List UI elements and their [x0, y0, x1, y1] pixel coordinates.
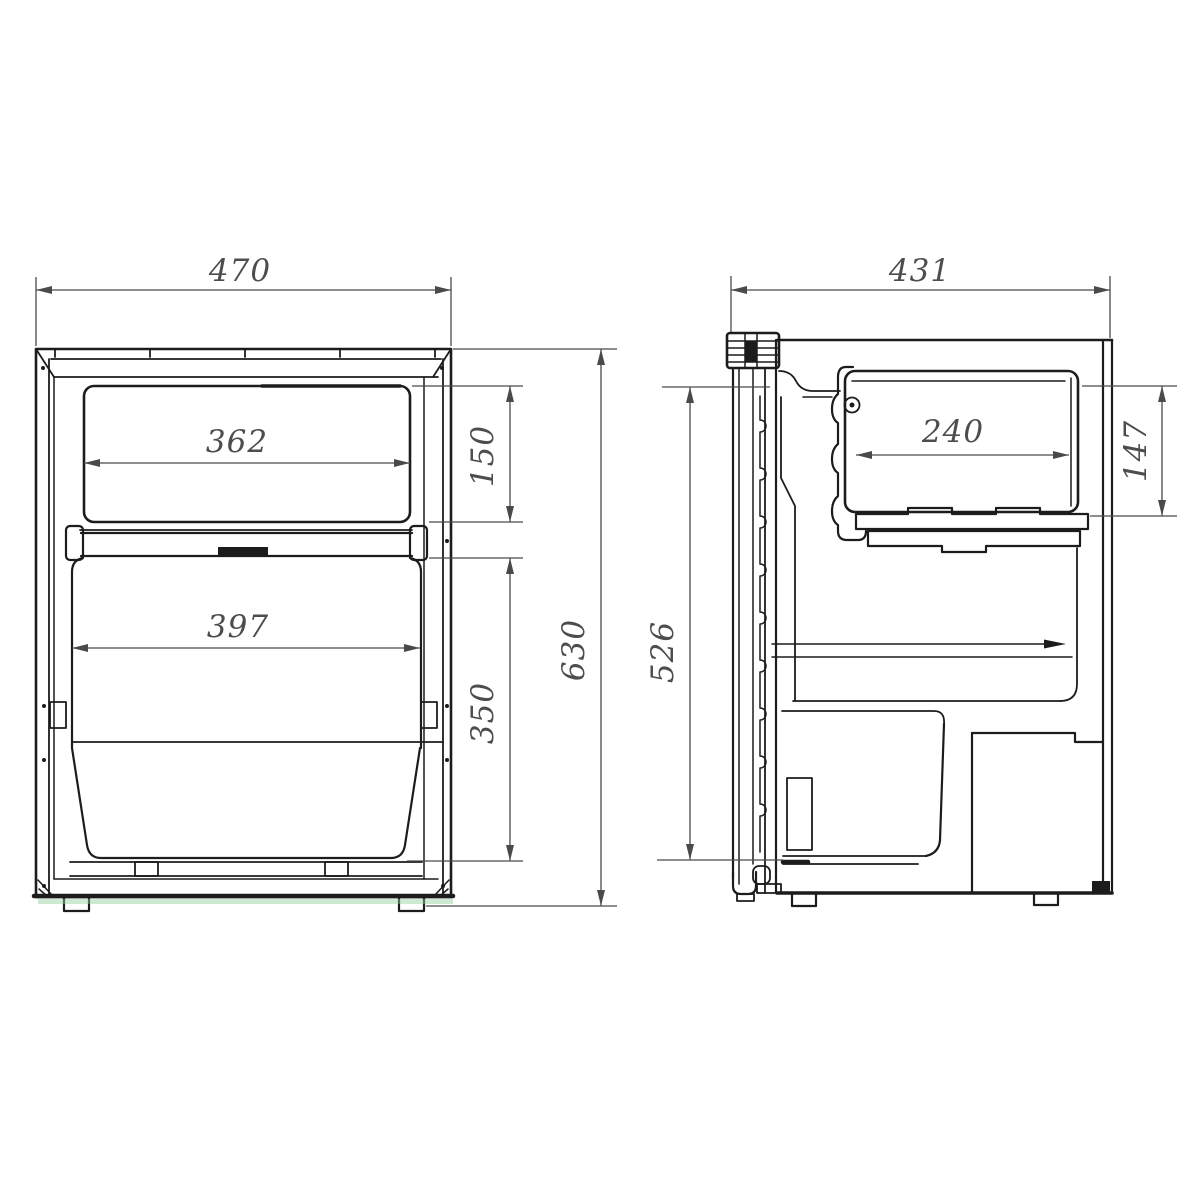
- bin-rail-tab-right: [325, 862, 348, 876]
- liner-front-step: [781, 397, 795, 701]
- dim-interior-height-label: 526: [645, 621, 681, 683]
- rail-end-cap-left: [66, 526, 83, 560]
- freezer-shelf-lower: [868, 531, 1080, 552]
- dim-overall-depth-label: 431: [888, 253, 951, 289]
- dim-freezer-inner-depth: 240: [856, 414, 1069, 455]
- corner-chamfer-left: [36, 349, 54, 377]
- dim-overall-width: 470: [36, 253, 451, 346]
- dim-lower-inner-width-label: 397: [207, 609, 269, 645]
- dim-freezer-inner-depth-label: 240: [921, 414, 984, 450]
- crisper-bin: [72, 748, 420, 858]
- corner-hatch-left: [38, 880, 52, 896]
- liner-top-step: [779, 371, 840, 391]
- dim-overall-height-label: 630: [556, 619, 592, 681]
- dim-overall-height: 630: [426, 349, 617, 906]
- bin-rim: [782, 711, 944, 724]
- mid-rail: [66, 526, 427, 560]
- shelf-edge-arrow: [1044, 640, 1066, 649]
- lower-wall-left: [72, 558, 83, 748]
- scan-tint-line: [38, 899, 453, 904]
- side-freezer-box: [832, 367, 1088, 552]
- lower-wall-right: [410, 558, 421, 748]
- technical-drawing-page: 470 362 150 397 350 630: [0, 0, 1200, 1200]
- liner-back-wall: [1060, 548, 1077, 701]
- shelf-bracket-left: [50, 702, 66, 728]
- back-wall: [1103, 340, 1112, 893]
- corner-hatch-right: [435, 880, 449, 896]
- side-view: 431 240 147 526: [645, 253, 1177, 906]
- bin-rail-tab-left: [135, 862, 158, 876]
- top-hinge-pin: [745, 341, 757, 362]
- bracket-screw-center: [850, 403, 855, 408]
- side-lower-section: [782, 711, 1110, 906]
- dim-lower-section-height-label: 350: [465, 682, 501, 744]
- bin-inner-step: [787, 778, 812, 850]
- front-view: 470 362 150 397 350 630: [34, 253, 617, 911]
- rear-corner-block: [1092, 881, 1110, 893]
- bin-back-wall: [926, 724, 944, 856]
- bin-bottom-rail: [70, 862, 422, 876]
- refrigerator-dimension-drawing: 470 362 150 397 350 630: [0, 0, 1200, 1200]
- dim-overall-depth: 431: [731, 253, 1110, 338]
- dim-upper-inner-width-label: 362: [206, 424, 268, 460]
- top-frame-ticks: [55, 350, 435, 357]
- dim-upper-inner-width: 362: [84, 424, 410, 463]
- dim-upper-section-height: 150: [412, 386, 523, 522]
- rail-handle: [218, 547, 268, 557]
- side-foot-front: [792, 893, 816, 906]
- dim-overall-width-label: 470: [208, 253, 271, 289]
- compressor-top: [972, 733, 1103, 742]
- door-profile: [727, 333, 781, 901]
- dim-lower-inner-width: 397: [72, 609, 420, 648]
- dim-freezer-section-height-label: 147: [1118, 420, 1154, 482]
- dim-upper-section-height-label: 150: [465, 425, 501, 487]
- dim-freezer-section-height: 147: [1082, 386, 1177, 516]
- lower-compartment: [50, 558, 443, 879]
